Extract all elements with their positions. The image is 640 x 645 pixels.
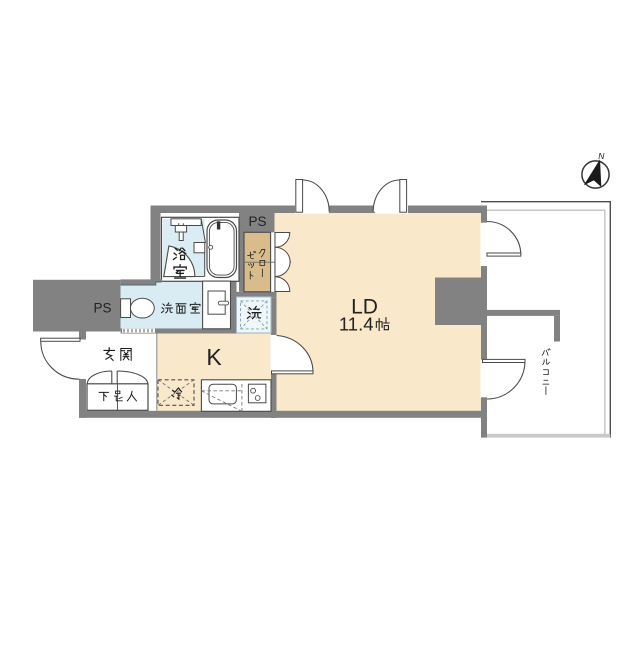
svg-text:PS: PS [248, 214, 266, 229]
svg-text:11.4: 11.4 [339, 314, 374, 335]
svg-text:K: K [206, 344, 222, 370]
svg-text:N: N [598, 151, 605, 161]
svg-text:PS: PS [93, 301, 111, 316]
